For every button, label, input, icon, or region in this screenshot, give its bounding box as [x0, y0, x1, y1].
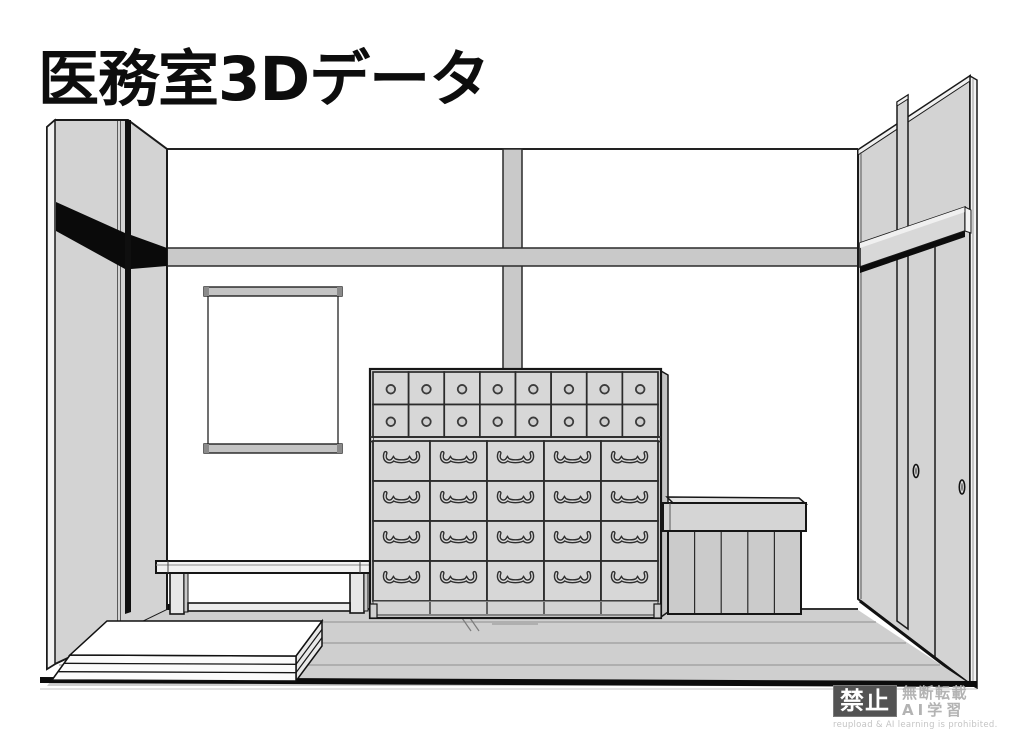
wall-chart-top-bar [204, 287, 342, 296]
watermark-text-block: 無断転載 AI学習 [902, 685, 968, 718]
wall-chart-bar-cap [204, 444, 209, 453]
left-wall-edge-face [47, 120, 55, 669]
ring-pull-icon [387, 417, 396, 426]
ring-pull-icon [458, 385, 467, 394]
ring-pull-icon [422, 385, 431, 394]
watermark-line1: 無断転載 [902, 685, 968, 702]
bench-top [156, 561, 372, 573]
page-title: 医務室3Dデータ [38, 48, 489, 112]
sliding-door-handle-recess [961, 483, 963, 491]
box-body [668, 531, 801, 614]
ring-pull-icon [636, 417, 645, 426]
left-wall [47, 120, 167, 669]
cabinet-plinth [373, 601, 658, 615]
watermark-badge: 禁止 [833, 685, 897, 717]
wall-chart-bar-cap [337, 444, 342, 453]
futon-front-face [52, 655, 296, 681]
ring-pull-icon [529, 385, 538, 394]
ring-pull-icon [529, 417, 538, 426]
wooden-box [663, 497, 806, 614]
ring-pull-icon [458, 417, 467, 426]
futon-top-face [70, 621, 322, 656]
illustration-canvas: 医務室3Dデータ 禁止 無断転載 AI学習 reupload & AI lear… [0, 0, 1024, 737]
wall-chart-bottom-bar [204, 444, 342, 453]
medicine-cabinet [370, 369, 668, 618]
left-wall-surface [47, 120, 167, 669]
cabinet-foot [370, 604, 377, 618]
watermark-line2: AI学習 [902, 702, 968, 719]
sliding-door-handle-recess [915, 467, 917, 475]
bench-leg [170, 573, 184, 614]
wall-rail [167, 248, 858, 266]
ring-pull-icon [493, 417, 502, 426]
ring-pull-icon [600, 385, 609, 394]
cabinet-small-drawers [373, 372, 658, 437]
watermark-row: 禁止 無断転載 AI学習 [833, 685, 985, 718]
box-lid-front [663, 503, 806, 531]
right-wall [858, 76, 977, 688]
left-wall-corner-post [125, 120, 131, 614]
right-wall-post [897, 95, 908, 629]
cabinet-foot [654, 604, 661, 618]
bench-leg [350, 573, 364, 613]
watermark-caption: reupload & AI learning is prohibited. [833, 720, 985, 730]
ring-pull-icon [565, 417, 574, 426]
ring-pull-icon [422, 417, 431, 426]
ring-pull-icon [565, 385, 574, 394]
wall-chart [204, 287, 342, 453]
right-wall-surface [858, 76, 970, 684]
bench-leg-side [364, 573, 368, 611]
right-wall-rail-end-cap [965, 207, 971, 233]
ring-pull-icon [387, 385, 396, 394]
wall-chart-bar-cap [204, 287, 209, 296]
ring-pull-icon [600, 417, 609, 426]
cabinet-large-drawers [373, 441, 658, 601]
wall-chart-bar-cap [337, 287, 342, 296]
ring-pull-icon [636, 385, 645, 394]
wall-chart-paper [208, 291, 338, 449]
watermark: 禁止 無断転載 AI学習 reupload & AI learning is p… [833, 685, 985, 730]
ring-pull-icon [493, 385, 502, 394]
bench-stretcher [188, 603, 350, 611]
